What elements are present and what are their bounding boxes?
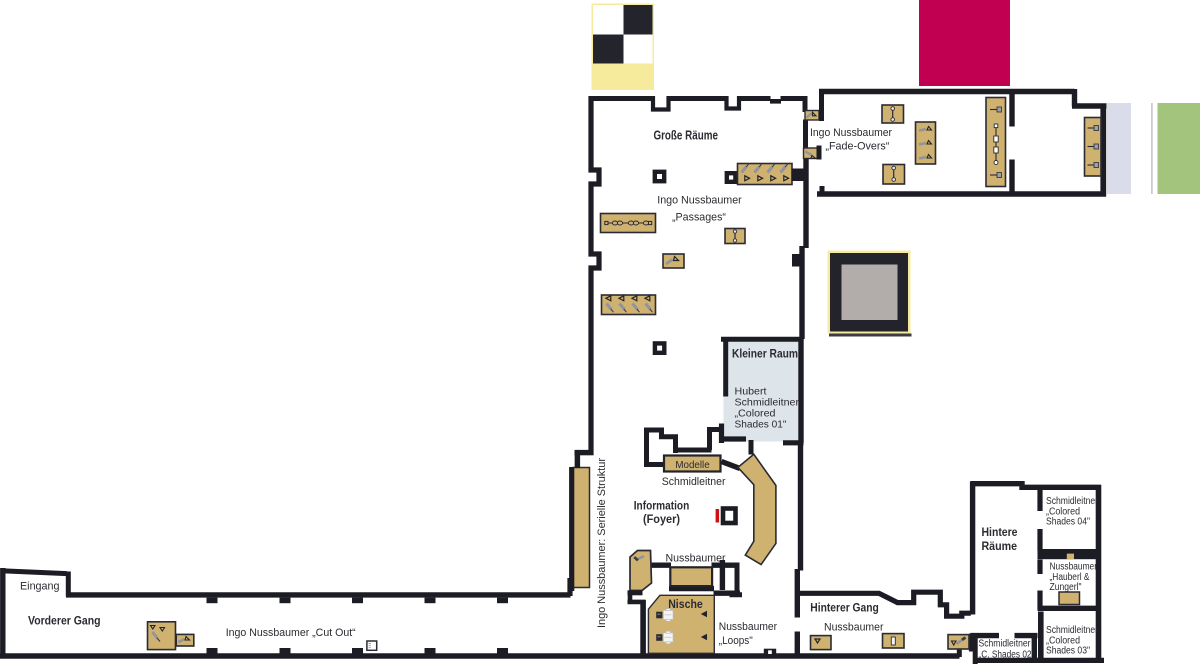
- svg-text:Ingo Nussbaumer: Serielle Stru: Ingo Nussbaumer: Serielle Struktur: [596, 458, 608, 628]
- svg-text:Ingo Nussbaumer: Ingo Nussbaumer: [810, 127, 892, 139]
- svg-text:Modelle: Modelle: [675, 460, 710, 471]
- svg-text:Shades 01": Shades 01": [735, 420, 787, 431]
- svg-text:„C. Shades 02": „C. Shades 02": [979, 649, 1035, 660]
- svg-text:Große Räume: Große Räume: [653, 129, 718, 143]
- svg-text:Ingo Nussbaumer: Ingo Nussbaumer: [657, 195, 742, 207]
- svg-text:Nussbaumer: Nussbaumer: [824, 622, 884, 634]
- svg-text:Schmidleitner: Schmidleitner: [662, 476, 726, 488]
- svg-text:(Foyer): (Foyer): [643, 513, 680, 526]
- svg-text:Nussbaumer: Nussbaumer: [719, 621, 777, 633]
- svg-text:„Fade-Overs“: „Fade-Overs“: [825, 141, 889, 153]
- svg-text:Räume: Räume: [982, 539, 1018, 553]
- svg-text:„Colored: „Colored: [735, 409, 776, 420]
- svg-text:Hinterer Gang: Hinterer Gang: [810, 601, 879, 615]
- svg-text:Nische: Nische: [668, 598, 703, 611]
- svg-text:Kleiner Raum: Kleiner Raum: [732, 348, 798, 361]
- svg-text:Hintere: Hintere: [982, 525, 1018, 539]
- svg-text:„Loops": „Loops": [719, 635, 753, 647]
- svg-text:Schmidleitner: Schmidleitner: [735, 398, 800, 409]
- svg-text:Ingo Nussbaumer „Cut Out“: Ingo Nussbaumer „Cut Out“: [226, 627, 356, 639]
- svg-text:Hubert: Hubert: [735, 387, 767, 398]
- svg-text:Eingang: Eingang: [20, 581, 60, 593]
- svg-text:„Passages“: „Passages“: [672, 212, 726, 224]
- svg-text:Information: Information: [634, 500, 690, 513]
- svg-text:Shades 04": Shades 04": [1046, 517, 1090, 528]
- svg-text:Schmidleitner: Schmidleitner: [979, 639, 1032, 650]
- svg-text:Shades 03": Shades 03": [1046, 646, 1090, 657]
- svg-text:Vorderer Gang: Vorderer Gang: [28, 614, 101, 628]
